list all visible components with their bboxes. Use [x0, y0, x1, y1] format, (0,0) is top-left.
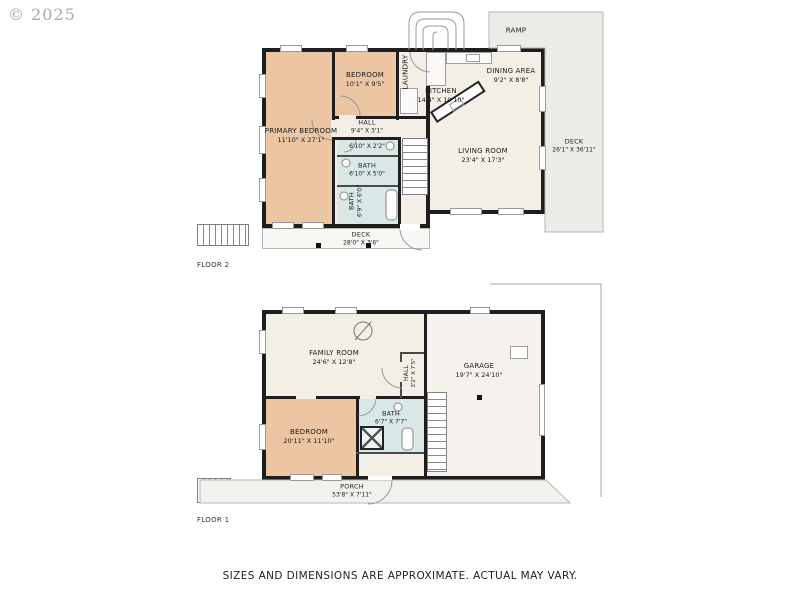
room-label-bedroom-f2: BEDROOM 10'1" X 9'5" [346, 71, 385, 89]
window [539, 146, 546, 170]
window [470, 307, 490, 314]
floor1-porch-outline [200, 480, 570, 503]
wall [400, 352, 424, 354]
room-label-dining-area: DINING AREA 9'2" X 8'8" [487, 67, 536, 85]
laundry-closet [400, 88, 418, 114]
room-label-hall-f2: HALL 9'4" X 3'1" [351, 119, 383, 136]
room-dims: 6'10" X 5'0" [349, 170, 385, 178]
room-dims: 19'7" X 24'10" [455, 371, 502, 380]
window [259, 424, 266, 450]
room-dims: 24'6" X 12'8" [309, 358, 359, 367]
floor1-exterior-stairs [197, 478, 231, 503]
room-dims: 28'0" X 3'6" [343, 239, 379, 247]
deck-post [316, 243, 321, 248]
floor2-exterior-stairs [197, 224, 249, 246]
room-name: DINING AREA [487, 67, 536, 76]
wall [337, 185, 398, 187]
window [259, 330, 266, 354]
window [302, 222, 324, 229]
window [539, 86, 546, 112]
garage-post [477, 395, 482, 400]
window [272, 222, 294, 229]
window [290, 474, 314, 481]
room-label-living-room: LIVING ROOM 23'4" X 17'3" [458, 147, 508, 165]
room-dims: 10'1" X 9'5" [346, 80, 385, 89]
room-name: LAUNDRY [401, 55, 410, 90]
floor2-title: FLOOR 2 [197, 261, 229, 269]
door-opening [400, 224, 420, 230]
garage-recess [510, 346, 528, 359]
room-name: BEDROOM [346, 71, 385, 80]
room-name: BATH [375, 410, 407, 419]
floor1-title: FLOOR 1 [197, 516, 229, 524]
bath-block-f2-area [337, 140, 398, 224]
room-name: DECK [552, 138, 595, 147]
window [346, 45, 368, 52]
disclaimer-text: SIZES AND DIMENSIONS ARE APPROXIMATE. AC… [223, 570, 578, 582]
room-label-porch: PORCH 53'8" X 7'11" [332, 483, 372, 500]
floor2-staircase [402, 138, 428, 195]
room-label-bath-lower: BATH 6'9" X 6'0" [348, 185, 365, 217]
room-label-bath-f1: BATH 6'7" X 7'7" [375, 410, 407, 427]
room-label-family-room: FAMILY ROOM 24'6" X 12'8" [309, 349, 359, 367]
room-dims: 11'10" X 27'1" [265, 136, 337, 145]
window [322, 474, 342, 481]
room-label-side-deck: DECK 26'1" X 36'11" [552, 138, 595, 155]
room-dims: 3'2" X 7'5" [411, 358, 418, 387]
door-opening [368, 476, 392, 480]
copyright-watermark: © 2025 [8, 5, 76, 24]
window [280, 45, 302, 52]
room-label-laundry: LAUNDRY [401, 55, 410, 90]
room-name: BATH [349, 162, 385, 171]
window [259, 178, 266, 202]
room-name: LIVING ROOM [458, 147, 508, 156]
window [282, 307, 304, 314]
room-label-kitchen: KITCHEN 14'4" X 10'10" [417, 87, 464, 105]
window [497, 45, 521, 52]
floor-plan-page: © 2025 [0, 0, 800, 600]
room-dims: 9'2" X 8'8" [487, 76, 536, 85]
room-label-ramp: RAMP [506, 26, 526, 35]
room-name: BEDROOM [283, 428, 334, 437]
room-dims: 53'8" X 7'11" [332, 491, 372, 499]
garage-side-door [539, 384, 545, 436]
kitchen-sink-icon [466, 54, 480, 62]
room-name: GARAGE [455, 362, 502, 371]
room-label-bedroom-f1: BEDROOM 20'11" X 11'10" [283, 428, 334, 446]
door-opening [360, 396, 376, 399]
room-name: PRIMARY BEDROOM [265, 127, 337, 136]
wall [356, 396, 359, 480]
room-dims: 20'11" X 11'10" [283, 437, 334, 446]
room-dims: 6'9" X 6'0" [356, 185, 364, 217]
wall [337, 155, 398, 157]
room-dims: 26'1" X 36'11" [552, 146, 595, 154]
room-dims: 6'10" X 2'2" [349, 143, 385, 151]
room-name: PORCH [332, 483, 372, 492]
room-dims: 9'4" X 3'1" [351, 127, 383, 135]
door-opening [400, 362, 402, 382]
floor1-staircase [427, 392, 447, 472]
room-name: FAMILY ROOM [309, 349, 359, 358]
wall [398, 137, 401, 228]
room-dims: 23'4" X 17'3" [458, 156, 508, 165]
kitchen-counter [426, 52, 446, 86]
window [450, 208, 482, 215]
room-name: HALL [351, 119, 383, 128]
window [259, 74, 266, 98]
room-name: RAMP [506, 26, 526, 35]
room-label-rear-deck: DECK 28'0" X 3'6" [343, 231, 379, 248]
wall [335, 137, 400, 140]
room-dims: 14'4" X 10'10" [417, 96, 464, 105]
room-name: BATH [348, 185, 357, 217]
room-name: KITCHEN [417, 87, 464, 96]
wall [424, 310, 427, 480]
room-label-garage: GARAGE 19'7" X 24'10" [455, 362, 502, 380]
ramp-switchback-curves [409, 12, 464, 50]
wall [396, 48, 399, 120]
room-name: DECK [343, 231, 379, 240]
window [335, 307, 357, 314]
shower-icon [360, 426, 384, 450]
room-label-primary-bedroom: PRIMARY BEDROOM 11'10" X 27'1" [265, 127, 337, 145]
door-opening [296, 396, 316, 399]
room-label-hall-f1: HALL 3'2" X 7'5" [403, 358, 419, 387]
room-label-bath-small: 6'10" X 2'2" [349, 143, 385, 151]
window [498, 208, 524, 215]
room-dims: 6'7" X 7'7" [375, 418, 407, 426]
room-label-bath-mid: BATH 6'10" X 5'0" [349, 162, 385, 179]
wall [356, 452, 424, 454]
room-name: HALL [403, 358, 411, 387]
